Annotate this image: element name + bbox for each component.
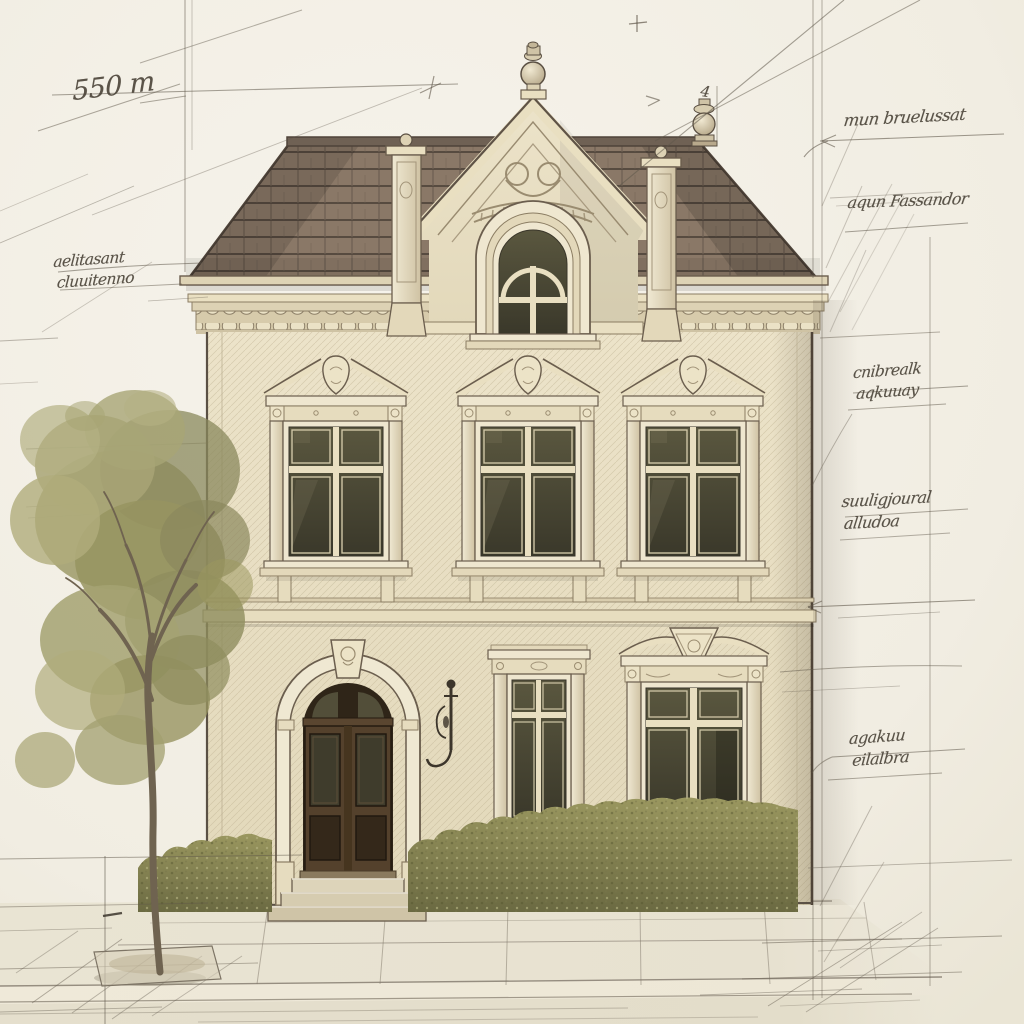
door-steps bbox=[268, 879, 426, 921]
roof-pilaster-right bbox=[641, 146, 681, 341]
annotation-right-note-3: cnibrealk aqkuuay bbox=[850, 358, 922, 404]
sketch-page: 550 m aelitasant cluuitenno mun brueluss… bbox=[0, 0, 1024, 1024]
annotation-right-note-5: agakuu eilalbra bbox=[846, 725, 912, 772]
keystone bbox=[331, 640, 365, 678]
annotation-right-note-2: aqun Fassandor bbox=[846, 189, 969, 214]
annotation-right-note-4: suuligjoural alludoa bbox=[838, 487, 932, 535]
annotation-left-note: aelitasant cluuitenno bbox=[51, 246, 136, 293]
roof-pilaster-left bbox=[386, 134, 426, 336]
